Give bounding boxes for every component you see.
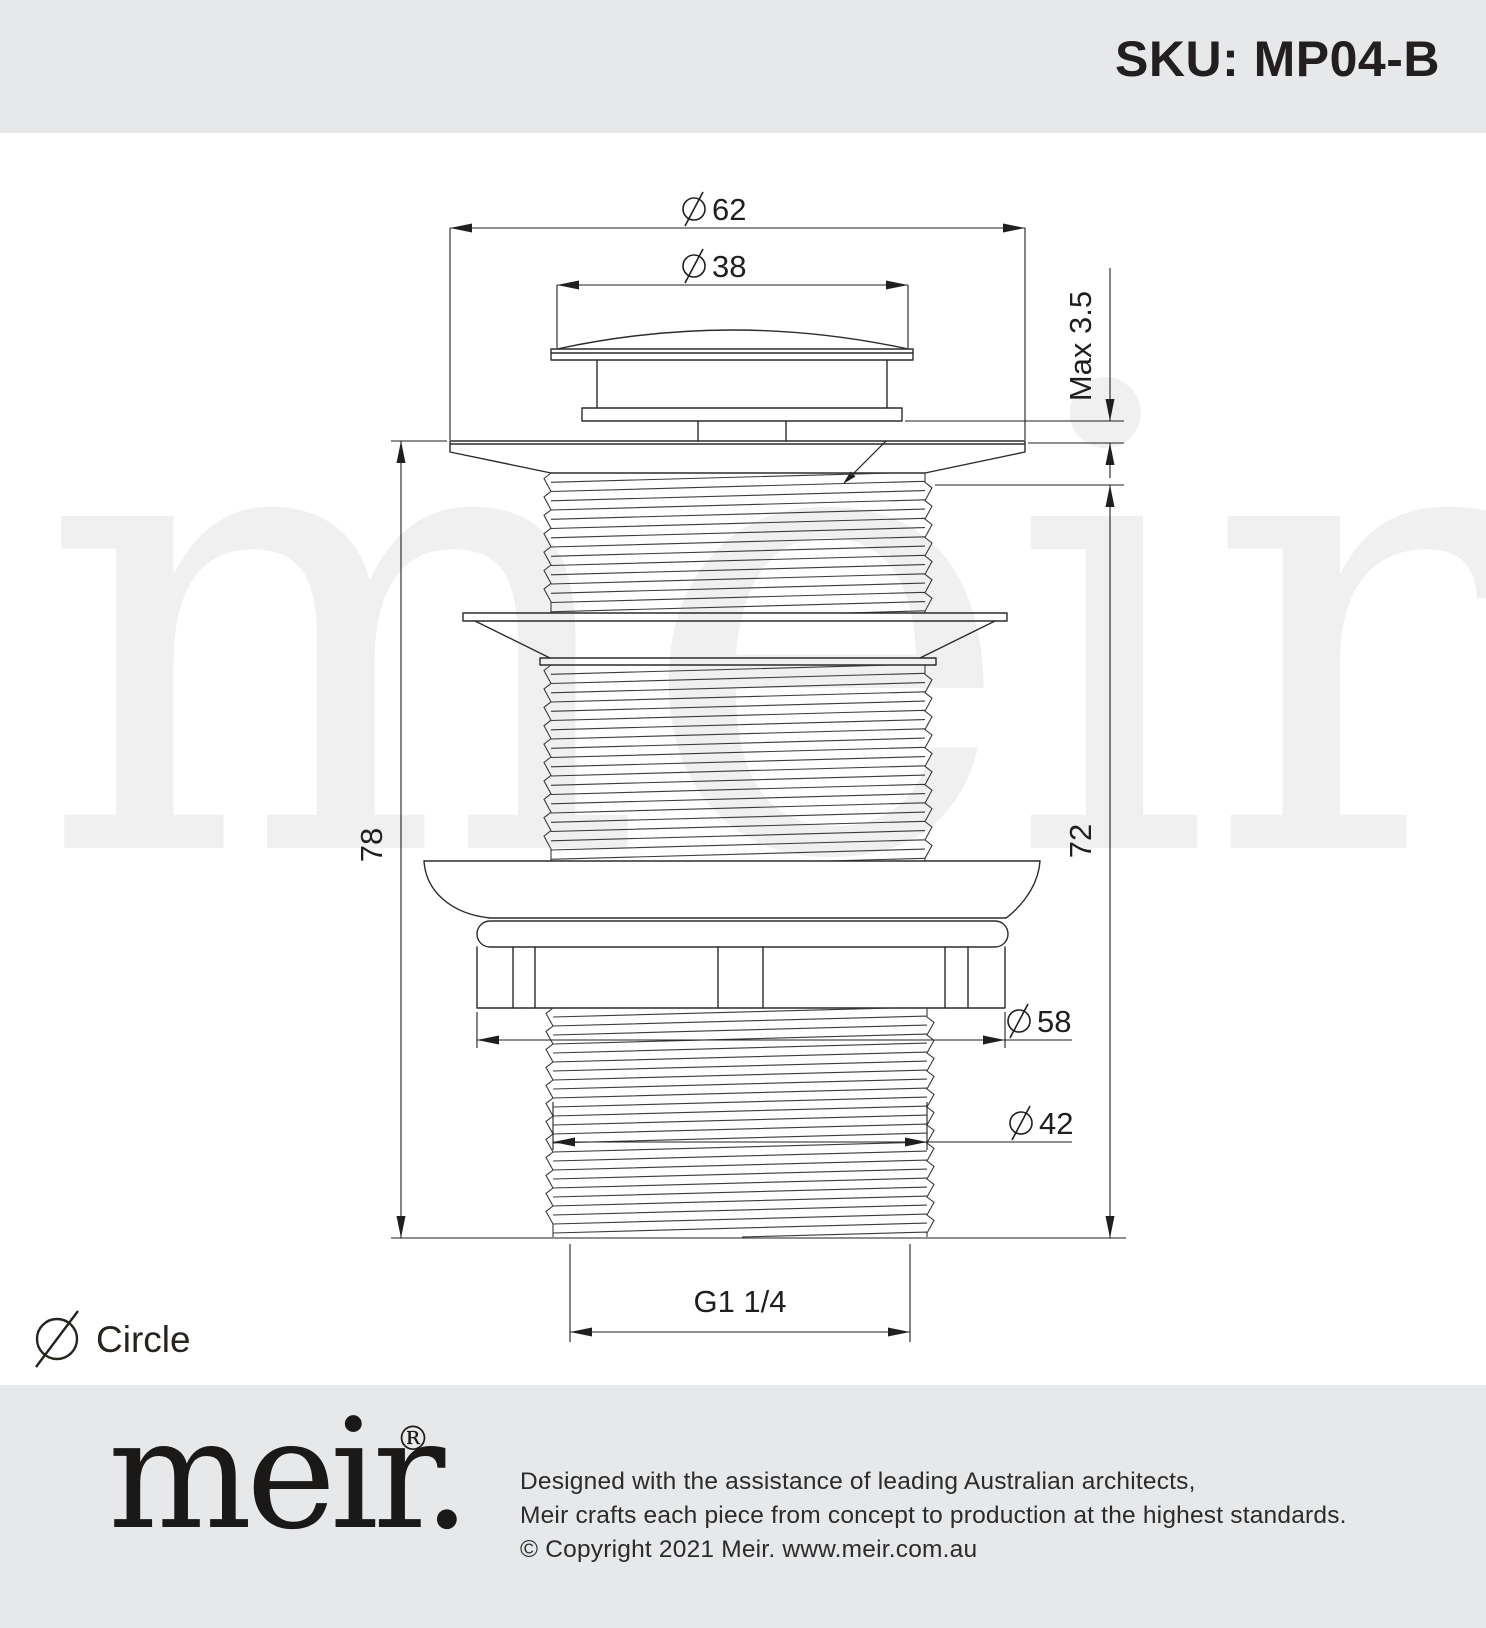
dim-thread-spec: G1 1/4 bbox=[570, 1244, 910, 1342]
dim-value: G1 1/4 bbox=[693, 1284, 786, 1319]
diameter-icon bbox=[1008, 1004, 1030, 1038]
background-watermark: meir. bbox=[38, 254, 1486, 999]
dim-value: 72 bbox=[1063, 824, 1098, 858]
dim-value: 42 bbox=[1039, 1106, 1073, 1141]
legend-label: Circle bbox=[96, 1319, 191, 1360]
footer-band: meir. ® Designed with the assistance of … bbox=[0, 1385, 1486, 1628]
dim-value: Max 3.5 bbox=[1063, 291, 1098, 401]
footer-line: Meir crafts each piece from concept to p… bbox=[520, 1499, 1347, 1533]
footer-line: © Copyright 2021 Meir. www.meir.com.au bbox=[520, 1533, 1347, 1567]
dim-value: 58 bbox=[1037, 1004, 1071, 1039]
thread-lower bbox=[546, 1008, 934, 1237]
diameter-icon bbox=[1010, 1106, 1032, 1140]
diameter-icon bbox=[36, 1311, 78, 1367]
footer-line: Designed with the assistance of leading … bbox=[520, 1465, 1347, 1499]
dim-value: 38 bbox=[712, 249, 746, 284]
spec-sheet-page: SKU: MP04-B meir. bbox=[0, 0, 1486, 1628]
diameter-icon bbox=[683, 192, 705, 226]
dim-value: 62 bbox=[712, 192, 746, 227]
dim-value: 78 bbox=[354, 828, 389, 862]
footer-text: Designed with the assistance of leading … bbox=[520, 1465, 1347, 1567]
technical-drawing: meir. bbox=[0, 0, 1486, 1628]
registered-trademark-symbol: ® bbox=[396, 1419, 430, 1459]
legend: Circle bbox=[36, 1311, 191, 1367]
